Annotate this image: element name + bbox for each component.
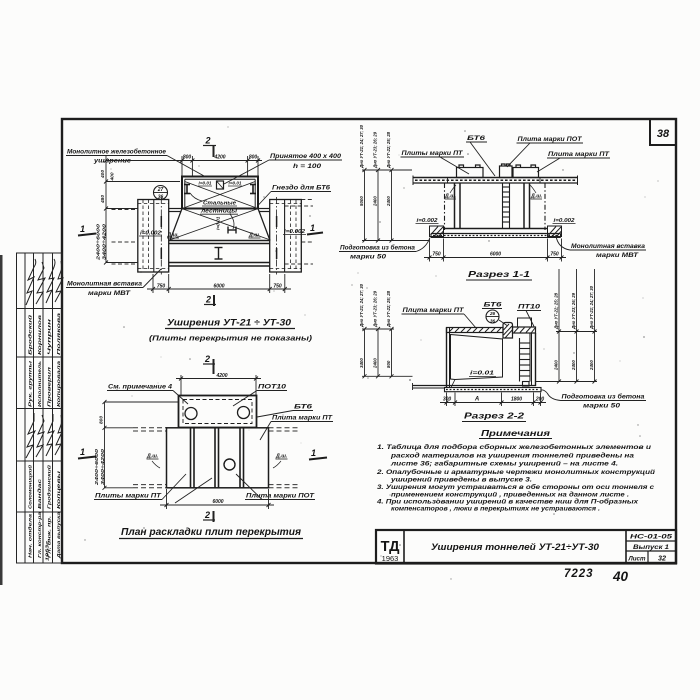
svg-text:400: 400 [100, 170, 106, 179]
svg-text:Дно УТ-21; 24; 27; 30: Дно УТ-21; 24; 27; 30 [359, 124, 364, 168]
svg-text:i=0.01: i=0.01 [199, 181, 212, 186]
svg-text:750: 750 [550, 252, 559, 258]
svg-text:Подготовка из бетона: Подготовка из бетона [340, 245, 416, 252]
svg-text:2400: 2400 [589, 360, 594, 371]
svg-text:Копцевы: Копцевы [56, 471, 61, 509]
svg-text:Бандас: Бандас [37, 478, 42, 509]
svg-text:Дно УТ-23; 26; 29: Дно УТ-23; 26; 29 [571, 292, 576, 330]
svg-text:6000: 6000 [490, 252, 501, 258]
svg-text:Корнилов: Корнилов [37, 315, 42, 355]
svg-text:Гнездо для БТ6: Гнездо для БТ6 [272, 186, 331, 192]
svg-text:Дно УТ-22; 25; 28: Дно УТ-22; 25; 28 [386, 290, 391, 328]
svg-text:Плита марки ПТ: Плита марки ПТ [403, 308, 466, 314]
svg-text:1: 1 [80, 447, 85, 457]
svg-text:36: 36 [158, 195, 164, 201]
svg-text:Дно УТ-22; 25; 28: Дно УТ-22; 25; 28 [386, 131, 391, 169]
svg-text:Дно УТ-23; 26; 29: Дно УТ-23; 26; 29 [373, 131, 378, 169]
svg-text:2: 2 [204, 354, 210, 364]
svg-text:2: 2 [204, 510, 210, 520]
svg-text:Дно УТ-22; 25; 28: Дно УТ-22; 25; 28 [554, 292, 559, 330]
svg-text:БТ6: БТ6 [294, 405, 313, 411]
svg-text:750: 750 [273, 284, 282, 290]
svg-text:27: 27 [157, 187, 164, 193]
svg-text:Плита марки ПТ: Плита марки ПТ [548, 152, 611, 158]
svg-text:Монолитное железобетонное: Монолитное железобетонное [67, 149, 167, 156]
svg-text:1800: 1800 [511, 397, 522, 403]
svg-text:1: 1 [80, 224, 85, 234]
svg-text:А: А [474, 397, 479, 403]
svg-text:марки МВТ: марки МВТ [596, 253, 640, 259]
svg-text:1. Таблица для подбора сбор: 1. Таблица для подбора сборных железобет… [377, 444, 651, 451]
svg-text:4200: 4200 [213, 155, 225, 161]
svg-text:БТ6: БТ6 [484, 303, 503, 309]
svg-text:Рук. группы: Рук. группы [28, 361, 33, 407]
svg-text:6000: 6000 [213, 284, 224, 290]
svg-text:400: 400 [110, 172, 116, 181]
svg-text:компенсаторов , люки в пере: компенсаторов , люки в перекрытиях не ус… [391, 506, 600, 513]
svg-text:750: 750 [432, 252, 441, 258]
svg-text:300: 300 [443, 397, 452, 403]
svg-text:Подготовка из бетона: Подготовка из бетона [562, 394, 646, 401]
svg-text:листе 36; габаритные схемы: листе 36; габаритные схемы уширений – на… [390, 461, 619, 468]
svg-text:i=0.01: i=0.01 [229, 181, 242, 186]
svg-text:См. примечание 4: См. примечание 4 [108, 385, 173, 391]
svg-text:Принятое 400 х 400: Принятое 400 х 400 [270, 154, 342, 160]
svg-text:200: 200 [535, 397, 545, 403]
svg-text:марки 50: марки 50 [350, 255, 387, 261]
svg-text:800: 800 [249, 155, 258, 161]
svg-text:2400: 2400 [373, 358, 378, 369]
svg-text:применением конструкций , при: применением конструкций , приведенных на… [391, 491, 629, 498]
svg-text:Лист: Лист [628, 556, 646, 563]
svg-text:Дно УТ-21; 24; 27; 30: Дно УТ-21; 24; 27; 30 [359, 283, 364, 327]
svg-text:Плита марки ПТ: Плита марки ПТ [272, 416, 334, 422]
svg-text:БТ6: БТ6 [467, 136, 486, 142]
svg-text:Дата выпуска: Дата выпуска [56, 511, 61, 559]
svg-text:марки 50: марки 50 [583, 404, 621, 410]
svg-text:Гл. констр-ра: Гл. констр-ра [37, 511, 42, 558]
svg-text:марки МВТ: марки МВТ [88, 291, 132, 297]
svg-text:1963г.: 1963г. [45, 539, 50, 561]
svg-text:Монолитная вставка: Монолитная вставка [571, 244, 646, 250]
svg-text:Выпуск 1: Выпуск 1 [633, 544, 669, 551]
svg-text:32: 32 [658, 554, 666, 563]
svg-text:800: 800 [386, 360, 391, 368]
svg-text:Исполнитель: Исполнитель [37, 361, 42, 407]
svg-text:800: 800 [99, 416, 105, 424]
svg-text:2400: 2400 [373, 196, 378, 207]
svg-text:3400: 3400 [359, 358, 364, 368]
svg-text:Копировала: Копировала [56, 360, 61, 407]
svg-text:4200: 4200 [215, 373, 227, 379]
svg-text:3400÷4200: 3400÷4200 [102, 223, 107, 260]
svg-text:i=0.01: i=0.01 [216, 216, 222, 230]
svg-text:2400÷6000: 2400÷6000 [94, 448, 99, 487]
svg-text:26: 26 [489, 311, 496, 316]
svg-text:Нач. отдела: Нач. отдела [28, 513, 33, 558]
svg-text:Полякова: Полякова [56, 312, 61, 355]
svg-text:1: 1 [311, 448, 316, 458]
svg-text:4. При использовании уширени: 4. При использовании уширений в качестве… [376, 498, 639, 505]
svg-text:7223: 7223 [564, 568, 594, 580]
svg-text:План раскладки плит перекры: План раскладки плит перекрытия [121, 527, 301, 538]
svg-text:ТД: ТД [381, 539, 400, 555]
svg-text:Дно УТ-21; 24; 27; 30: Дно УТ-21; 24; 27; 30 [589, 285, 594, 329]
svg-text:Монолитная вставка: Монолитная вставка [67, 282, 143, 288]
svg-text:h = 100: h = 100 [293, 164, 322, 170]
svg-text:ПТ10: ПТ10 [518, 305, 541, 311]
svg-text:Соломоницкий: Соломоницкий [27, 465, 33, 509]
svg-text:Дно УТ-23; 26; 29: Дно УТ-23; 26; 29 [373, 290, 378, 328]
svg-text:Разрез 2-2: Разрез 2-2 [464, 411, 524, 421]
svg-text:(Плиты перекрытия не показаны): (Плиты перекрытия не показаны) [149, 334, 313, 343]
svg-text:2400÷6000: 2400÷6000 [96, 223, 101, 262]
svg-text:уширение: уширение [93, 159, 132, 165]
svg-text:40: 40 [612, 569, 629, 584]
svg-text:Уширения тоннелей УТ-21÷УТ-30: Уширения тоннелей УТ-21÷УТ-30 [431, 542, 600, 553]
svg-text:2400: 2400 [554, 360, 559, 371]
svg-text:расход материалов на уширен: расход материалов на уширения тоннелей п… [390, 452, 635, 459]
svg-text:Бродский: Бродский [27, 315, 33, 355]
svg-text:Плиты марки ПТ: Плиты марки ПТ [402, 151, 465, 157]
svg-text:5000: 5000 [359, 196, 364, 206]
svg-text:Проверил: Проверил [47, 367, 52, 407]
svg-text:1963: 1963 [382, 554, 399, 563]
svg-text:ПОТ10: ПОТ10 [258, 385, 287, 391]
svg-text:3400÷4200: 3400÷4200 [100, 448, 105, 485]
svg-text:480: 480 [100, 195, 106, 204]
svg-text:3. Уширения могут устраивать: 3. Уширения могут устраиваться в обе сто… [377, 484, 655, 491]
svg-text:2: 2 [205, 136, 211, 146]
svg-text:Примечания: Примечания [481, 429, 550, 438]
svg-text:2: 2 [205, 295, 211, 305]
svg-text:НС-01-05: НС-01-05 [630, 534, 672, 541]
svg-text:750: 750 [157, 284, 166, 290]
svg-text:i=0.01: i=0.01 [470, 371, 494, 377]
svg-text:36: 36 [490, 318, 496, 323]
svg-text:1: 1 [310, 223, 315, 233]
svg-text:38: 38 [657, 128, 670, 140]
svg-text:Чуприн: Чуприн [47, 319, 52, 355]
svg-text:2400: 2400 [386, 196, 391, 207]
svg-text:Плиты марки ПТ: Плиты марки ПТ [95, 494, 163, 500]
svg-text:Разрез 1-1: Разрез 1-1 [468, 269, 530, 279]
svg-text:уширений приведены в выпуск: уширений приведены в выпуске 3. [390, 477, 533, 484]
svg-text:2400: 2400 [571, 360, 576, 371]
svg-text:6000: 6000 [212, 499, 223, 505]
svg-text:2. Опалубочные и арматурные: 2. Опалубочные и арматурные чертежи моно… [376, 469, 656, 476]
svg-text:800: 800 [183, 155, 192, 161]
svg-text:Гродзинский: Гродзинский [46, 465, 52, 509]
svg-text:Плита марки ПОТ: Плита марки ПОТ [518, 137, 584, 143]
svg-text:лестницы: лестницы [200, 209, 237, 215]
svg-text:Уширения УТ-21 ÷ УТ-30: Уширения УТ-21 ÷ УТ-30 [167, 318, 291, 328]
